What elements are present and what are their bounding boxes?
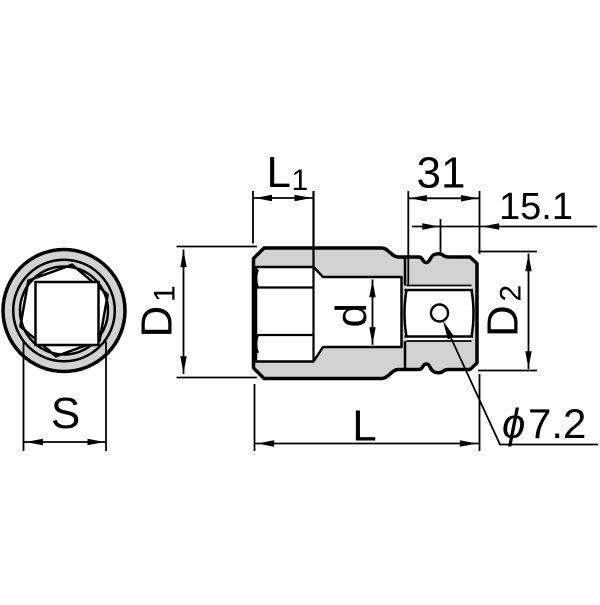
- drawing-canvas: L 1 31 15.1 D 1: [0, 0, 600, 600]
- arrowhead-up: [180, 250, 186, 267]
- label-l1-sub: 1: [292, 164, 309, 197]
- label-151: 15.1: [499, 186, 573, 228]
- arrowhead-left: [257, 440, 274, 446]
- pin-hole: [431, 305, 448, 322]
- label-phi: ϕ: [502, 400, 525, 447]
- arrowhead-up: [525, 254, 531, 271]
- label-d1-sub: 1: [149, 285, 182, 302]
- label-d1: D: [133, 306, 182, 338]
- arrowhead-down: [525, 351, 531, 368]
- arrowhead-left-point: [482, 223, 499, 229]
- label-l1: L: [267, 148, 291, 197]
- label-s: S: [51, 389, 80, 438]
- drive-recess-left-arc: [405, 290, 407, 337]
- label-31: 31: [417, 149, 466, 198]
- label-d2-sub: 2: [495, 285, 528, 302]
- dimension-l: L: [255, 374, 480, 451]
- square-drive-opening: [36, 282, 99, 345]
- label-d2: D: [479, 305, 528, 337]
- dimension-d1: D 1: [133, 247, 258, 378]
- label-l: L: [352, 402, 376, 451]
- dimension-d2: D 2: [478, 252, 537, 371]
- arrowhead-right: [460, 440, 477, 446]
- arrowhead-right-point: [422, 223, 439, 229]
- arrowhead-right: [88, 439, 105, 445]
- arrowhead-down: [180, 356, 186, 373]
- label-phi-value: 7.2: [528, 400, 586, 447]
- drive-recess-right-arc: [472, 290, 474, 337]
- arrowhead-left: [26, 439, 43, 445]
- technical-drawing: L 1 31 15.1 D 1: [0, 0, 600, 600]
- label-d-bore: d: [327, 303, 376, 327]
